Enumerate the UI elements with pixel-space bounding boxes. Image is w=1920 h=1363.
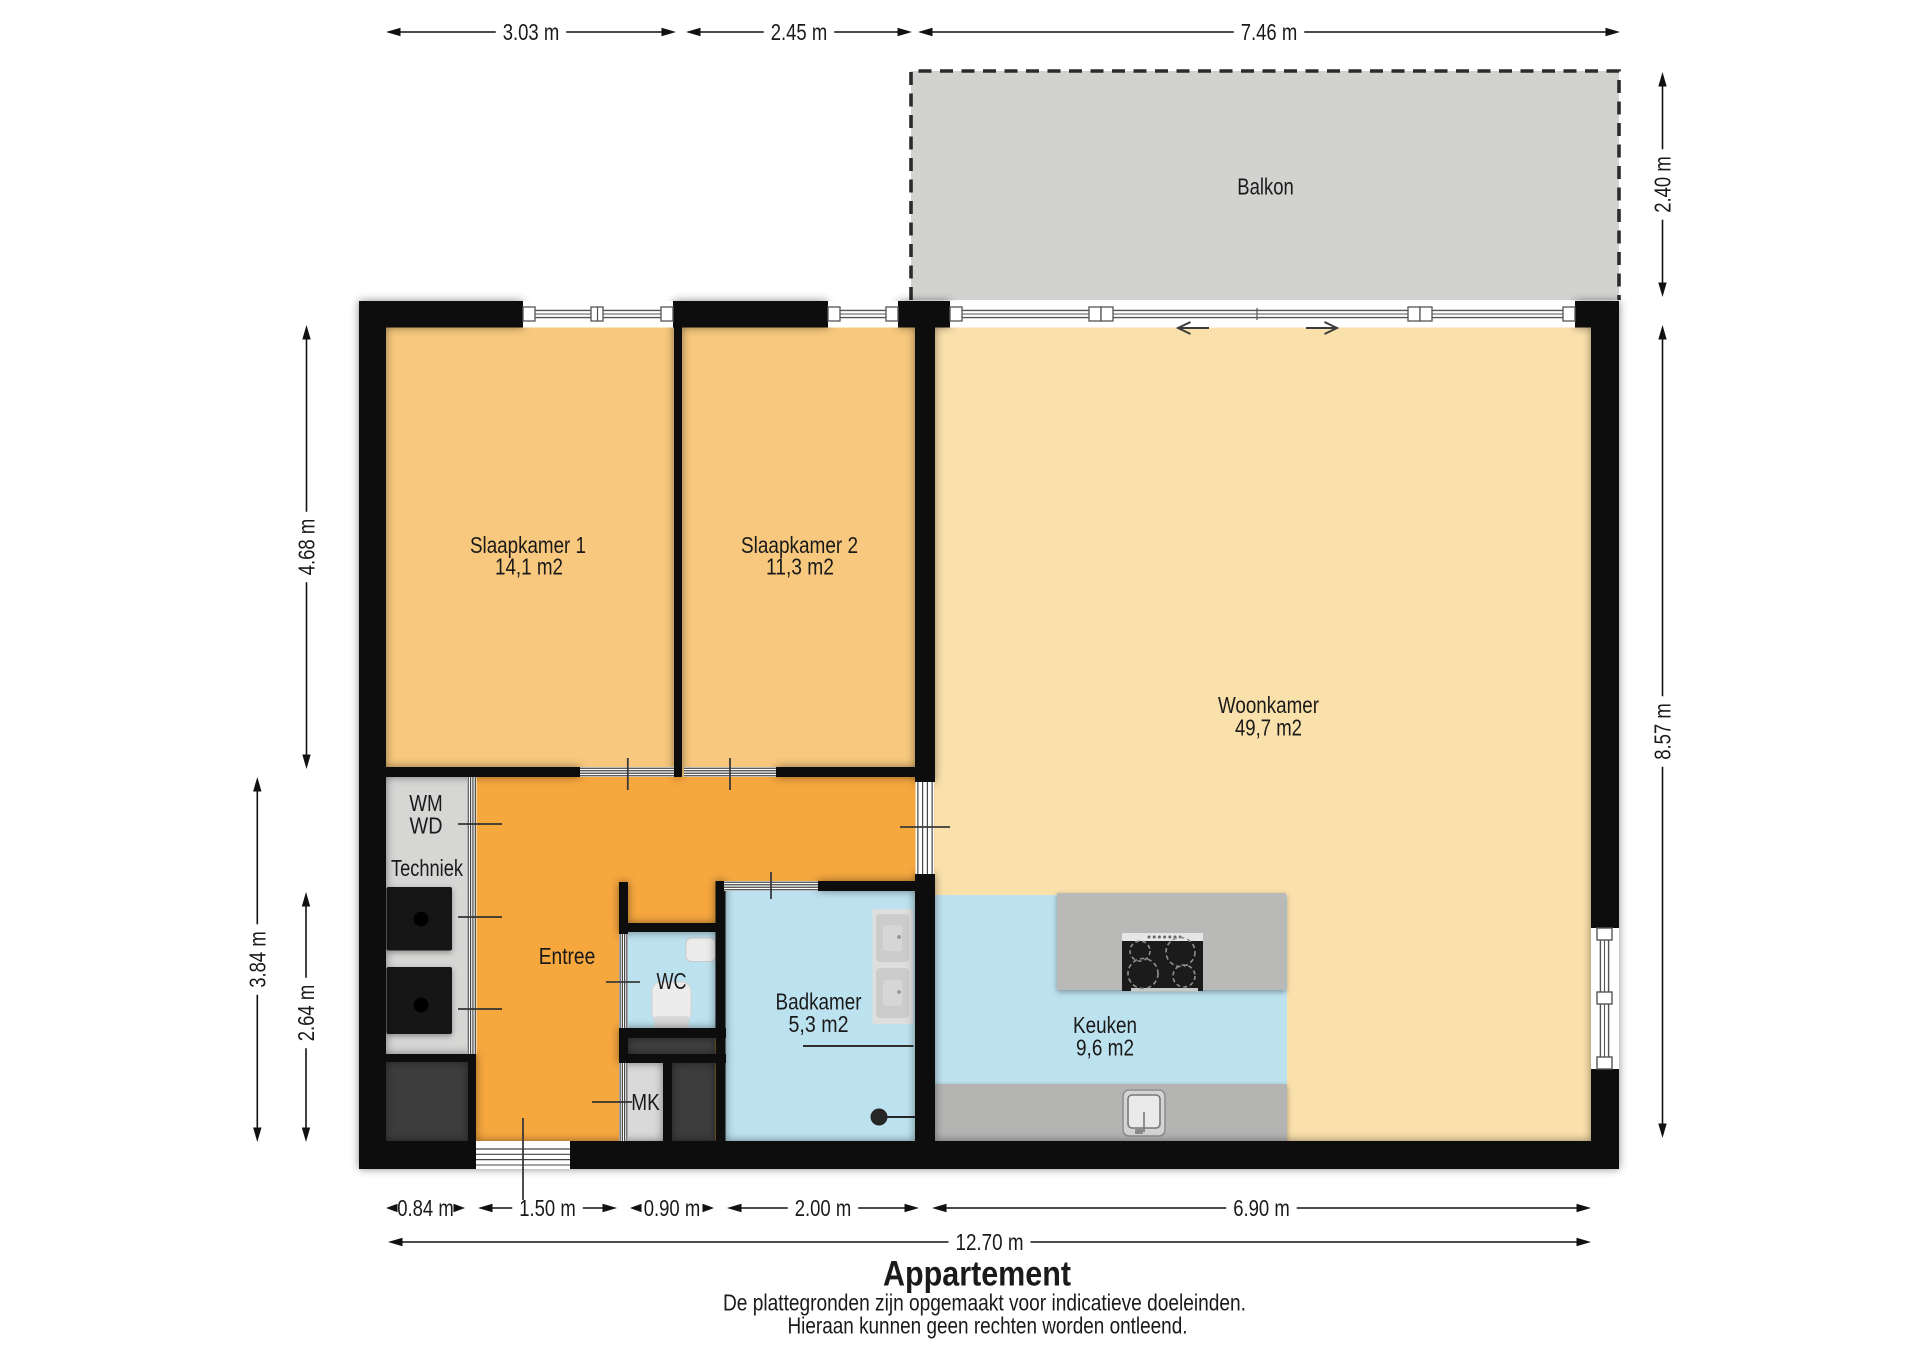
svg-text:5,3 m2: 5,3 m2 bbox=[789, 1011, 849, 1037]
svg-text:3.84 m: 3.84 m bbox=[244, 931, 270, 988]
svg-text:2.64 m: 2.64 m bbox=[293, 985, 319, 1042]
svg-text:MK: MK bbox=[631, 1089, 660, 1115]
svg-text:49,7 m2: 49,7 m2 bbox=[1235, 714, 1302, 740]
svg-text:WC: WC bbox=[657, 968, 687, 994]
svg-text:6.90 m: 6.90 m bbox=[1233, 1195, 1290, 1221]
svg-text:0.90 m: 0.90 m bbox=[644, 1195, 701, 1221]
svg-text:3.03 m: 3.03 m bbox=[503, 19, 560, 45]
svg-text:Hieraan kunnen geen rechten wo: Hieraan kunnen geen rechten worden ontle… bbox=[788, 1313, 1188, 1339]
svg-text:Appartement: Appartement bbox=[883, 1255, 1071, 1294]
svg-text:Entree: Entree bbox=[539, 943, 596, 969]
svg-text:Techniek: Techniek bbox=[391, 855, 463, 881]
svg-text:2.45 m: 2.45 m bbox=[771, 19, 828, 45]
svg-text:14,1 m2: 14,1 m2 bbox=[495, 554, 563, 580]
svg-text:1.50 m: 1.50 m bbox=[519, 1195, 576, 1221]
svg-text:11,3 m2: 11,3 m2 bbox=[766, 554, 834, 580]
svg-text:WD: WD bbox=[410, 812, 443, 838]
svg-text:8.57 m: 8.57 m bbox=[1650, 703, 1676, 760]
svg-text:12.70 m: 12.70 m bbox=[956, 1229, 1024, 1255]
svg-text:2.40 m: 2.40 m bbox=[1650, 156, 1676, 213]
svg-text:4.68 m: 4.68 m bbox=[294, 519, 320, 576]
svg-text:2.00 m: 2.00 m bbox=[795, 1195, 852, 1221]
svg-text:9,6 m2: 9,6 m2 bbox=[1076, 1034, 1134, 1060]
svg-text:7.46 m: 7.46 m bbox=[1241, 19, 1298, 45]
svg-text:0.84 m: 0.84 m bbox=[397, 1195, 454, 1221]
svg-text:Balkon: Balkon bbox=[1237, 174, 1294, 200]
